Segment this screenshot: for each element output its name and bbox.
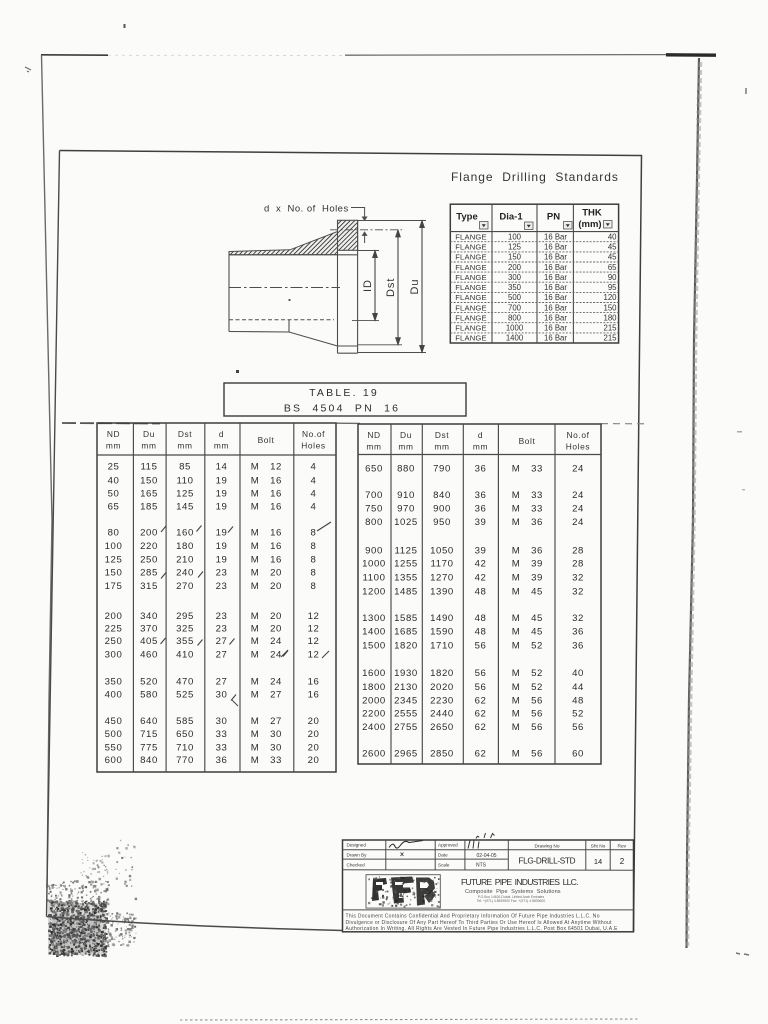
svg-text:36: 36 — [572, 640, 584, 651]
svg-text:mm: mm — [177, 441, 192, 451]
svg-text:48: 48 — [475, 613, 487, 624]
svg-text:27: 27 — [216, 649, 228, 660]
svg-text:d x No. of Holes: d x No. of Holes — [264, 204, 349, 215]
svg-text:NTS: NTS — [476, 863, 487, 869]
svg-text:250: 250 — [105, 636, 123, 647]
svg-text:M: M — [512, 626, 521, 637]
svg-text:12: 12 — [308, 636, 320, 647]
svg-text:32: 32 — [572, 572, 584, 583]
svg-text:M: M — [512, 613, 521, 624]
svg-text:50: 50 — [108, 488, 120, 499]
svg-text:500: 500 — [508, 293, 522, 302]
svg-text:790: 790 — [433, 463, 451, 474]
svg-text:1170: 1170 — [430, 558, 453, 569]
svg-text:48: 48 — [475, 586, 487, 597]
svg-text:Flange Drilling Standards: Flange Drilling Standards — [451, 170, 620, 184]
svg-text:2650: 2650 — [430, 722, 454, 733]
svg-text:1400: 1400 — [506, 334, 524, 343]
svg-text:125: 125 — [105, 554, 123, 565]
svg-text:Du: Du — [143, 429, 155, 439]
svg-text:1490: 1490 — [430, 613, 454, 624]
svg-text:27: 27 — [270, 716, 282, 727]
svg-text:20: 20 — [308, 755, 320, 766]
svg-text:600: 600 — [105, 755, 123, 766]
svg-text:Tel: +(971) 4 8839500 Fax: +(: Tel: +(971) 4 8839500 Fax: +(971) 4 8839… — [477, 899, 546, 903]
svg-text:Bolt: Bolt — [258, 435, 275, 445]
svg-text:Holes: Holes — [566, 442, 590, 452]
svg-text:56: 56 — [572, 722, 584, 733]
svg-text:M: M — [251, 742, 260, 753]
svg-text:M: M — [251, 611, 260, 622]
svg-text:470: 470 — [176, 676, 194, 687]
svg-text:525: 525 — [176, 689, 194, 700]
svg-text:24: 24 — [270, 649, 282, 660]
svg-text:16: 16 — [270, 501, 282, 512]
svg-text:M: M — [512, 490, 521, 501]
svg-text:44: 44 — [572, 682, 584, 693]
svg-text:2000: 2000 — [362, 695, 386, 706]
svg-text:120: 120 — [603, 293, 617, 302]
svg-text:250: 250 — [140, 554, 158, 565]
svg-text:180: 180 — [176, 541, 194, 552]
svg-text:M: M — [512, 572, 521, 583]
svg-text:M: M — [251, 554, 260, 565]
svg-text:d: d — [478, 430, 483, 440]
svg-text:19: 19 — [216, 475, 228, 486]
svg-text:23: 23 — [216, 581, 228, 592]
svg-text:BS 4504 PN 16: BS 4504 PN 16 — [284, 403, 400, 415]
svg-text:16: 16 — [308, 689, 320, 700]
svg-text:42: 42 — [475, 572, 487, 583]
svg-text:PN: PN — [547, 212, 560, 223]
svg-text:28: 28 — [572, 545, 584, 556]
svg-text:27: 27 — [216, 636, 228, 647]
svg-text:12: 12 — [308, 649, 320, 660]
svg-text:125: 125 — [508, 243, 522, 252]
svg-text:1400: 1400 — [362, 626, 386, 637]
svg-text:1710: 1710 — [430, 640, 454, 651]
svg-text:Rev: Rev — [618, 843, 627, 849]
svg-text:56: 56 — [531, 708, 543, 719]
svg-text:36: 36 — [216, 755, 228, 766]
svg-text:100: 100 — [508, 232, 522, 241]
svg-text:770: 770 — [176, 755, 194, 766]
svg-text:M: M — [512, 722, 521, 733]
svg-text:56: 56 — [475, 668, 487, 679]
svg-text:16 Bar: 16 Bar — [544, 324, 567, 333]
svg-text:20: 20 — [270, 611, 282, 622]
svg-text:165: 165 — [140, 488, 158, 499]
svg-text:580: 580 — [140, 689, 158, 700]
svg-text:FLANGE: FLANGE — [455, 253, 487, 262]
svg-text:FLANGE: FLANGE — [455, 283, 487, 292]
svg-text:45: 45 — [608, 243, 617, 252]
svg-text:2230: 2230 — [430, 695, 454, 706]
svg-text:19: 19 — [216, 501, 228, 512]
svg-text:125: 125 — [176, 488, 194, 499]
svg-text:16: 16 — [270, 488, 282, 499]
svg-text:2755: 2755 — [394, 722, 418, 733]
svg-text:160: 160 — [176, 527, 194, 538]
svg-text:2345: 2345 — [394, 695, 418, 706]
svg-text:23: 23 — [216, 567, 228, 578]
svg-text:36: 36 — [531, 517, 543, 528]
svg-text:650: 650 — [365, 463, 383, 474]
svg-text:12: 12 — [308, 611, 320, 622]
svg-text:150: 150 — [603, 303, 617, 312]
svg-text:39: 39 — [531, 572, 543, 583]
svg-text:8: 8 — [311, 541, 317, 552]
svg-text:300: 300 — [105, 649, 123, 660]
svg-text:16 Bar: 16 Bar — [544, 293, 567, 302]
svg-text:M: M — [251, 755, 260, 766]
svg-text:1200: 1200 — [362, 586, 386, 597]
svg-text:16 Bar: 16 Bar — [544, 303, 567, 312]
svg-text:mm: mm — [366, 442, 381, 452]
svg-text:85: 85 — [179, 461, 191, 472]
svg-text:350: 350 — [105, 676, 123, 687]
svg-text:410: 410 — [176, 649, 194, 660]
svg-text:Dst: Dst — [385, 278, 397, 298]
svg-text:Drawn By: Drawn By — [347, 853, 368, 858]
svg-text:1355: 1355 — [394, 572, 418, 583]
svg-text:14: 14 — [594, 857, 602, 866]
svg-text:33: 33 — [216, 742, 228, 753]
svg-text:24: 24 — [270, 676, 282, 687]
svg-text:mm: mm — [214, 441, 229, 451]
svg-text:500: 500 — [105, 729, 123, 740]
svg-text:16 Bar: 16 Bar — [544, 334, 567, 343]
svg-text:16: 16 — [270, 541, 282, 552]
svg-text:700: 700 — [365, 490, 383, 501]
svg-text:1685: 1685 — [394, 626, 418, 637]
svg-text:2600: 2600 — [362, 748, 386, 759]
svg-text:60: 60 — [572, 748, 584, 759]
svg-text:1930: 1930 — [394, 668, 418, 679]
svg-text:350: 350 — [508, 283, 522, 292]
svg-text:M: M — [251, 475, 260, 486]
svg-text:Drawing No: Drawing No — [534, 843, 559, 849]
svg-text:M: M — [251, 676, 260, 687]
svg-text:4: 4 — [311, 461, 317, 472]
svg-text:FLANGE: FLANGE — [455, 324, 487, 333]
svg-text:mm: mm — [106, 441, 121, 451]
svg-text:2200: 2200 — [362, 708, 386, 719]
svg-text:27: 27 — [270, 689, 282, 700]
svg-text:200: 200 — [105, 611, 123, 622]
svg-text:M: M — [512, 748, 521, 759]
svg-text:16: 16 — [270, 475, 282, 486]
svg-text:56: 56 — [531, 722, 543, 733]
svg-text:56: 56 — [531, 748, 543, 759]
svg-text:Dst: Dst — [435, 430, 449, 440]
svg-text:400: 400 — [105, 689, 123, 700]
svg-text:840: 840 — [140, 755, 158, 766]
svg-text:2400: 2400 — [362, 722, 386, 733]
svg-text:M: M — [251, 689, 260, 700]
svg-text:FLANGE: FLANGE — [455, 293, 487, 302]
svg-text:1590: 1590 — [430, 626, 454, 637]
svg-text:950: 950 — [433, 517, 451, 528]
svg-text:8: 8 — [311, 567, 317, 578]
svg-text:THK: THK — [582, 208, 602, 219]
svg-text:23: 23 — [216, 611, 228, 622]
svg-text:Designed: Designed — [347, 842, 367, 847]
svg-text:M: M — [251, 636, 260, 647]
svg-text:36: 36 — [475, 490, 487, 501]
svg-text:650: 650 — [176, 729, 194, 740]
svg-text:2130: 2130 — [394, 682, 418, 693]
svg-text:1270: 1270 — [430, 572, 454, 583]
svg-text:56: 56 — [475, 682, 487, 693]
svg-text:30: 30 — [270, 742, 282, 753]
svg-text:150: 150 — [140, 475, 158, 486]
svg-text:2850: 2850 — [430, 748, 454, 759]
svg-text:90: 90 — [608, 273, 617, 282]
svg-text:39: 39 — [475, 517, 487, 528]
svg-text:100: 100 — [105, 541, 123, 552]
svg-text:175: 175 — [105, 581, 123, 592]
svg-text:40: 40 — [572, 668, 584, 679]
svg-text:M: M — [512, 517, 521, 528]
svg-text:12: 12 — [270, 461, 282, 472]
svg-text:48: 48 — [475, 626, 487, 637]
svg-text:M: M — [512, 695, 521, 706]
svg-text:8: 8 — [311, 554, 317, 565]
svg-text:Holes: Holes — [301, 441, 325, 451]
svg-text:24: 24 — [270, 636, 282, 647]
svg-text:2555: 2555 — [394, 708, 418, 719]
svg-text:215: 215 — [603, 334, 617, 343]
svg-text:M: M — [251, 461, 260, 472]
svg-text:20: 20 — [308, 716, 320, 727]
svg-text:710: 710 — [176, 742, 194, 753]
svg-text:52: 52 — [531, 668, 543, 679]
svg-text:30: 30 — [216, 716, 228, 727]
svg-text:M: M — [512, 463, 521, 474]
svg-text:1025: 1025 — [394, 517, 418, 528]
svg-text:ND: ND — [367, 430, 380, 440]
svg-text:300: 300 — [508, 273, 522, 282]
svg-text:24: 24 — [572, 517, 584, 528]
svg-text:52: 52 — [531, 640, 543, 651]
svg-text:23: 23 — [216, 623, 228, 634]
svg-text:910: 910 — [397, 490, 415, 501]
svg-text:Checked: Checked — [347, 862, 366, 867]
svg-text:775: 775 — [140, 742, 158, 753]
svg-text:715: 715 — [140, 729, 158, 740]
svg-text:FLG-DRILL-STD: FLG-DRILL-STD — [519, 857, 576, 866]
svg-text:19: 19 — [216, 541, 228, 552]
svg-text:14: 14 — [216, 461, 228, 472]
svg-text:220: 220 — [140, 541, 158, 552]
svg-text:2440: 2440 — [430, 708, 454, 719]
svg-text:39: 39 — [475, 545, 487, 556]
svg-text:M: M — [251, 649, 260, 660]
svg-text:Sht No: Sht No — [591, 843, 606, 849]
svg-text:65: 65 — [108, 501, 120, 512]
svg-text:33: 33 — [531, 463, 543, 474]
svg-text:16: 16 — [270, 527, 282, 538]
svg-text:M: M — [251, 488, 260, 499]
svg-text:42: 42 — [475, 558, 487, 569]
svg-text:1820: 1820 — [394, 640, 418, 651]
svg-text:16 Bar: 16 Bar — [544, 243, 567, 252]
svg-text:M: M — [512, 640, 521, 651]
svg-text:FLANGE: FLANGE — [455, 263, 487, 272]
svg-text:33: 33 — [270, 755, 282, 766]
svg-text:Divulgence or Disclosure Of An: Divulgence or Disclosure Of Any Part Her… — [346, 920, 613, 926]
svg-text:ID: ID — [362, 279, 374, 292]
svg-text:4: 4 — [311, 501, 317, 512]
svg-text:180: 180 — [603, 313, 617, 322]
svg-text:450: 450 — [105, 716, 123, 727]
svg-text:52: 52 — [531, 682, 543, 693]
svg-text:1820: 1820 — [430, 668, 454, 679]
svg-text:340: 340 — [140, 611, 158, 622]
svg-text:48: 48 — [572, 695, 584, 706]
svg-text:4: 4 — [311, 488, 317, 499]
svg-text:M: M — [251, 527, 260, 538]
svg-text:1600: 1600 — [362, 668, 386, 679]
svg-text:Bolt: Bolt — [519, 436, 536, 446]
svg-text:56: 56 — [475, 640, 487, 651]
svg-text:1000: 1000 — [506, 324, 524, 333]
svg-text:FLANGE: FLANGE — [455, 303, 487, 312]
svg-text:M: M — [512, 503, 521, 514]
svg-text:200: 200 — [508, 263, 522, 272]
svg-text:16: 16 — [270, 554, 282, 565]
svg-text:FLANGE: FLANGE — [455, 334, 487, 343]
svg-text:Dst: Dst — [178, 429, 192, 439]
svg-text:1585: 1585 — [394, 613, 418, 624]
svg-text:Dia-1: Dia-1 — [499, 212, 523, 223]
svg-text:200: 200 — [140, 527, 158, 538]
svg-text:45: 45 — [531, 586, 543, 597]
svg-text:FLANGE: FLANGE — [455, 232, 487, 241]
svg-text:16 Bar: 16 Bar — [544, 283, 567, 292]
svg-text:80: 80 — [108, 527, 120, 538]
svg-text:840: 840 — [433, 490, 451, 501]
svg-text:39: 39 — [531, 558, 543, 569]
svg-text:36: 36 — [531, 545, 543, 556]
svg-text:M: M — [251, 716, 260, 727]
svg-text:Authorization In Writing. All: Authorization In Writing. All Rights Are… — [346, 926, 619, 932]
svg-text:1500: 1500 — [362, 640, 386, 651]
svg-text:640: 640 — [140, 716, 158, 727]
svg-text:20: 20 — [270, 623, 282, 634]
svg-text:115: 115 — [140, 461, 157, 472]
svg-text:460: 460 — [140, 649, 158, 660]
svg-text:1300: 1300 — [362, 613, 386, 624]
svg-text:62: 62 — [475, 708, 487, 719]
svg-text:M: M — [512, 708, 521, 719]
svg-text:M: M — [512, 558, 521, 569]
svg-text:1050: 1050 — [430, 545, 454, 556]
svg-text:Scale: Scale — [438, 862, 450, 867]
svg-text:16 Bar: 16 Bar — [544, 273, 567, 282]
svg-text:M: M — [251, 501, 260, 512]
svg-text:65: 65 — [608, 263, 617, 272]
svg-text:FLANGE: FLANGE — [455, 313, 487, 322]
svg-text:28: 28 — [572, 558, 584, 569]
svg-text:M: M — [251, 567, 260, 578]
svg-text:19: 19 — [216, 488, 228, 499]
svg-text:30: 30 — [270, 729, 282, 740]
svg-text:1800: 1800 — [362, 682, 386, 693]
svg-text:40: 40 — [608, 232, 617, 241]
svg-text:20: 20 — [308, 742, 320, 753]
svg-text:95: 95 — [608, 283, 617, 292]
svg-text:56: 56 — [531, 695, 543, 706]
svg-text:Date: Date — [438, 853, 448, 858]
svg-text:800: 800 — [365, 517, 383, 528]
svg-text:62: 62 — [475, 695, 487, 706]
svg-text:45: 45 — [608, 253, 617, 262]
svg-text:19: 19 — [216, 554, 228, 565]
svg-text:750: 750 — [365, 503, 383, 514]
svg-text:M: M — [512, 682, 521, 693]
svg-text:1485: 1485 — [394, 586, 418, 597]
svg-text:mm: mm — [141, 441, 156, 451]
svg-text:Approved: Approved — [438, 842, 458, 847]
svg-text:62: 62 — [475, 748, 487, 759]
svg-text:M: M — [251, 541, 260, 552]
svg-text:970: 970 — [397, 503, 415, 514]
svg-text:1390: 1390 — [430, 586, 454, 597]
svg-text:4: 4 — [311, 475, 317, 486]
svg-text:mm: mm — [473, 442, 488, 452]
svg-text:M: M — [512, 668, 521, 679]
svg-text:M: M — [512, 545, 521, 556]
svg-text:25: 25 — [108, 461, 120, 472]
svg-text:585: 585 — [176, 716, 194, 727]
svg-text:24: 24 — [572, 503, 584, 514]
svg-text:33: 33 — [216, 729, 228, 740]
svg-text:mm: mm — [398, 442, 413, 452]
svg-text:8: 8 — [311, 581, 317, 592]
svg-text:Du: Du — [409, 278, 421, 294]
svg-text:215: 215 — [603, 324, 617, 333]
svg-text:19: 19 — [216, 527, 228, 538]
svg-text:d: d — [219, 429, 224, 439]
svg-text:185: 185 — [140, 501, 158, 512]
svg-text:Type: Type — [456, 212, 477, 223]
svg-text:16 Bar: 16 Bar — [544, 313, 567, 322]
svg-text:ND: ND — [107, 429, 120, 439]
svg-text:550: 550 — [105, 742, 123, 753]
svg-text:36: 36 — [572, 626, 584, 637]
svg-text:20: 20 — [270, 581, 282, 592]
svg-text:M: M — [512, 586, 521, 597]
svg-text:1100: 1100 — [362, 572, 385, 583]
svg-text:33: 33 — [531, 490, 543, 501]
svg-text:405: 405 — [140, 636, 158, 647]
svg-text:M: M — [251, 581, 260, 592]
svg-text:45: 45 — [531, 626, 543, 637]
svg-text:FUTURE PIPE INDUSTRIES LLC.: FUTURE PIPE INDUSTRIES LLC. — [461, 877, 579, 887]
svg-text:355: 355 — [176, 636, 194, 647]
svg-text:FLANGE: FLANGE — [455, 243, 487, 252]
svg-text:32: 32 — [572, 586, 584, 597]
svg-text:8: 8 — [311, 527, 317, 538]
svg-text:This Document Contains Confide: This Document Contains Confidential And … — [346, 913, 600, 919]
svg-text:1125: 1125 — [394, 545, 417, 556]
svg-text:33: 33 — [531, 503, 543, 514]
svg-text:520: 520 — [140, 676, 158, 687]
svg-text:27: 27 — [216, 676, 228, 687]
svg-text:32: 32 — [572, 613, 584, 624]
